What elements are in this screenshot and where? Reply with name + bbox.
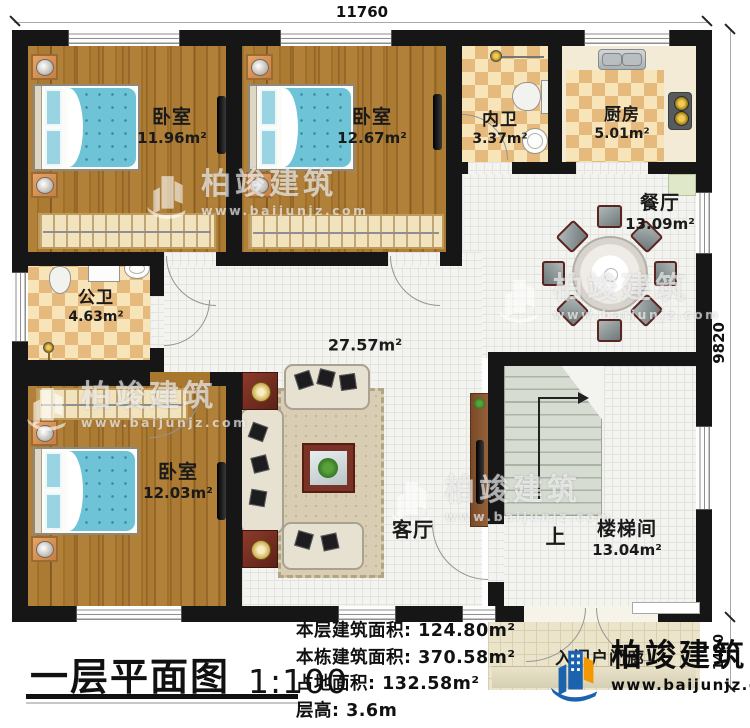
dimension-tick — [701, 15, 712, 26]
room-label-living: 客厅 — [392, 519, 434, 542]
dining-table — [572, 236, 648, 312]
dimension-right-value: 9820 — [710, 322, 728, 364]
end-table — [242, 372, 278, 410]
room-label-bedroom-bottom-left: 卧室 12.03m² — [143, 462, 213, 502]
bed-headboard — [35, 86, 42, 169]
tv-icon — [217, 462, 226, 520]
wall — [548, 46, 562, 162]
stat-row: 本层建筑面积: 124.80m² — [296, 617, 516, 644]
chair — [597, 319, 622, 342]
bed — [33, 84, 140, 171]
wall — [446, 46, 462, 252]
brand-name: 柏竣建筑 — [611, 637, 750, 676]
floor-plan-canvas: 柏竣建筑 www.baijunjz.com 柏竣建筑 www.baijunjz.… — [0, 0, 750, 728]
door-opening — [150, 372, 210, 386]
bed-headboard — [250, 86, 257, 169]
chair — [597, 205, 622, 228]
area-stats: 本层建筑面积: 124.80m² 本栋建筑面积: 370.58m² 占地面积: … — [296, 617, 516, 723]
bed-headboard — [35, 449, 42, 533]
room-label-dining: 餐厅 13.09m² — [625, 193, 695, 233]
closet — [248, 214, 444, 249]
stair-direction-line — [538, 399, 540, 499]
door-opening — [150, 296, 164, 348]
stair-direction-line — [538, 397, 580, 399]
pillow — [260, 89, 277, 126]
window — [76, 606, 182, 622]
pillow — [45, 129, 62, 166]
window — [696, 192, 712, 254]
room-label-stairwell: 楼梯间 13.04m² — [592, 519, 662, 559]
wall — [226, 372, 242, 606]
chair — [542, 261, 565, 286]
dimension-top-value: 11760 — [336, 3, 388, 21]
living-area-label: 27.57m² — [328, 336, 402, 355]
stat-row: 本栋建筑面积: 370.58m² — [296, 644, 516, 671]
nightstand — [31, 54, 58, 80]
pillow — [339, 373, 357, 391]
window — [68, 30, 180, 46]
tv-icon — [217, 96, 226, 154]
door-opening — [468, 162, 512, 174]
closet — [38, 213, 216, 249]
room-label-kitchen: 厨房 5.01m² — [594, 106, 649, 142]
tv-icon — [433, 94, 442, 150]
wall — [226, 46, 242, 252]
nightstand — [31, 172, 58, 198]
room-label-inner-bath: 内卫 3.37m² — [472, 111, 527, 147]
tv-icon — [476, 440, 484, 504]
brand-website: www.baijunjz.com — [611, 676, 750, 694]
pillow — [321, 533, 340, 552]
pillow — [45, 89, 62, 126]
title-underline — [26, 694, 298, 699]
nightstand — [31, 536, 58, 562]
brand-block: 柏竣建筑 www.baijunjz.com — [545, 637, 750, 707]
door-opening — [576, 162, 648, 174]
wall — [12, 360, 164, 372]
end-table — [242, 530, 278, 568]
room-label-bedroom-top-middle: 卧室 12.67m² — [337, 107, 407, 147]
dimension-line-top — [14, 22, 710, 23]
stat-row: 层高: 3.6m — [296, 697, 516, 724]
bed — [33, 447, 139, 535]
window — [584, 30, 670, 46]
brand-logo-icon — [545, 637, 607, 707]
chair — [654, 261, 677, 286]
page-title: 一层平面图 — [30, 646, 230, 701]
room-label-bedroom-top-left: 卧室 11.96m² — [137, 107, 207, 147]
nightstand — [246, 54, 273, 80]
kitchen-sink-icon — [598, 49, 646, 70]
window — [696, 426, 712, 510]
title-underline-light — [26, 702, 298, 704]
toilet-icon — [512, 82, 541, 111]
stove-icon — [668, 92, 692, 130]
wall — [488, 352, 712, 366]
window — [280, 30, 392, 46]
pillow — [45, 493, 62, 530]
stat-row: 占地面积: 132.58m² — [296, 670, 516, 697]
dimension-line-right — [730, 30, 731, 690]
plant-icon — [474, 398, 485, 409]
stair-direction-arrow — [578, 392, 589, 404]
plant-icon — [318, 458, 338, 478]
window — [12, 272, 28, 342]
stair-up-label: 上 — [546, 526, 567, 549]
pillow — [249, 489, 268, 508]
room-label-public-bath: 公卫 4.63m² — [68, 289, 123, 325]
door-opening — [488, 524, 504, 582]
shower-head-icon — [490, 50, 502, 62]
pillow — [260, 129, 277, 166]
nightstand — [31, 420, 58, 446]
shower-rod — [500, 56, 544, 58]
dimension-tick — [9, 15, 20, 26]
pillow — [45, 452, 62, 489]
nightstand — [246, 172, 273, 198]
